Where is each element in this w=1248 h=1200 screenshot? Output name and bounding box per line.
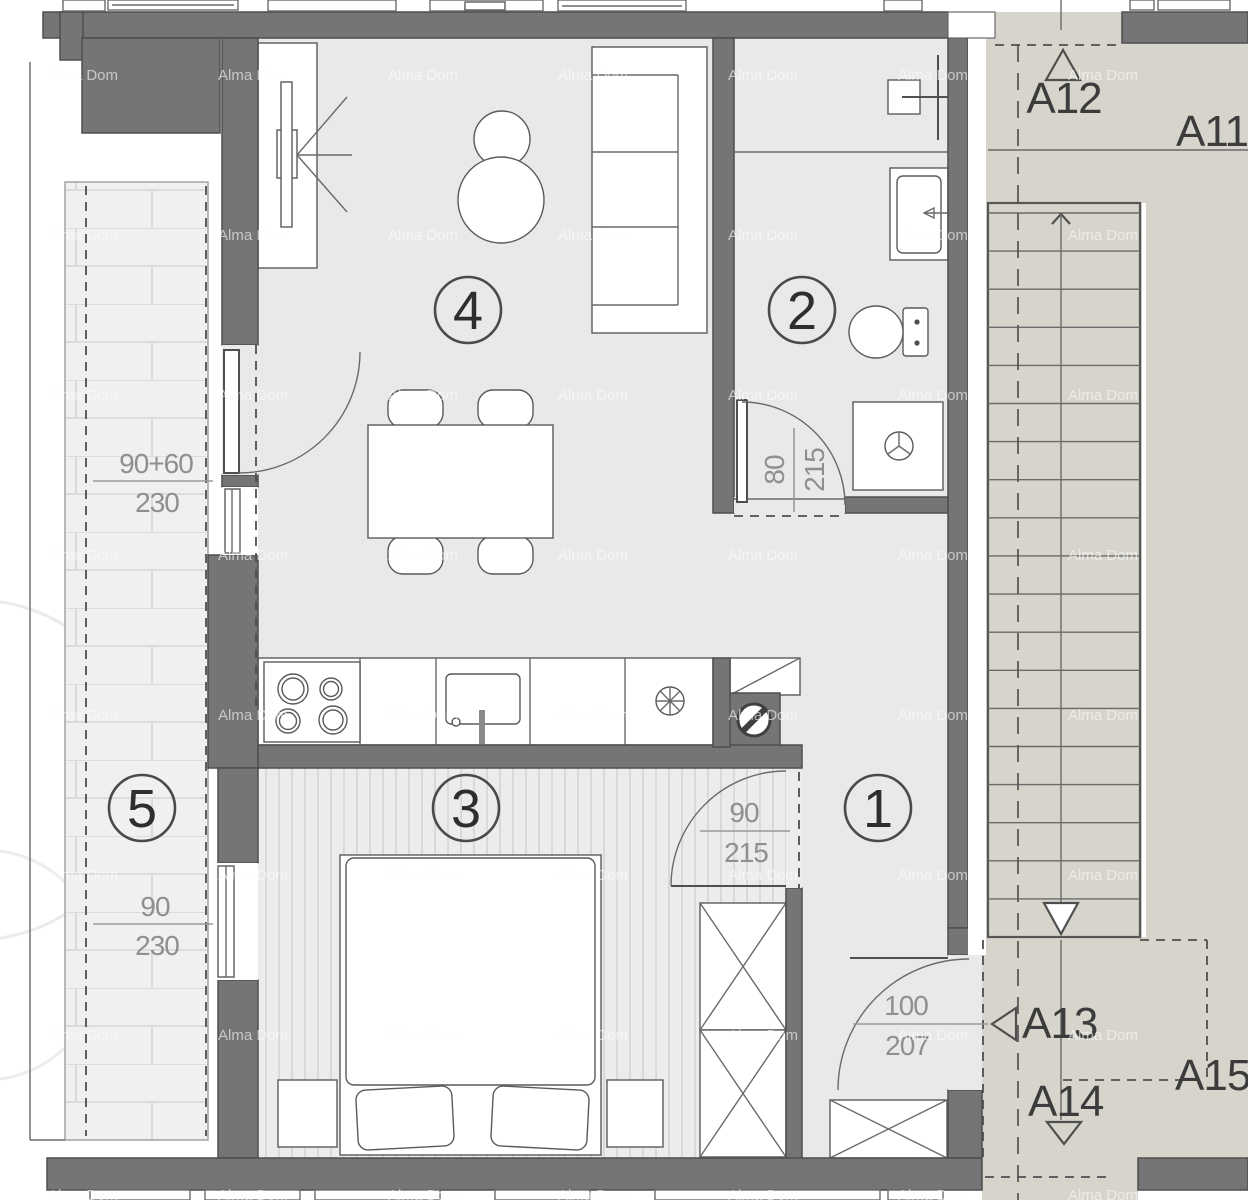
watermark-text: Alma Dom — [48, 1027, 118, 1044]
dim-width: 80 — [759, 455, 790, 485]
watermark-text: Alma Dom — [728, 1027, 798, 1044]
watermark-text: Alma Dom — [898, 1027, 968, 1044]
corner-unit — [730, 658, 800, 695]
bathroom-left-wall — [713, 38, 734, 513]
chair — [478, 390, 533, 428]
watermark-text: Alma Dom — [388, 1187, 458, 1200]
top-left-wall-stub — [60, 12, 83, 60]
bottom-right-wall — [1138, 1158, 1248, 1190]
watermark-text: Alma Dom — [48, 707, 118, 724]
top-wall — [43, 12, 948, 38]
bathroom-bottom-wall — [845, 497, 948, 513]
dim-width: 90 — [140, 891, 170, 922]
watermark-text: Alma Dom — [1068, 1027, 1138, 1044]
bed-mattress — [346, 858, 595, 1085]
dim-width: 90+60 — [119, 448, 193, 479]
kitchen-wall-stub — [713, 658, 730, 747]
watermark-text: Alma Dom — [48, 547, 118, 564]
watermark-text: Alma Dom — [388, 707, 458, 724]
watermark-text: Alma Dom — [218, 1027, 288, 1044]
watermark-text: Alma Dom — [558, 227, 628, 244]
watermark-text: Alma Dom — [898, 387, 968, 404]
balcony-window — [222, 487, 258, 555]
watermark-text: Alma Dom — [218, 707, 288, 724]
top-window-gap — [948, 12, 995, 38]
floor-plan: 90+60 230 90 230 80 215 90 215 100 207 — [0, 0, 1248, 1200]
nightstand — [607, 1080, 663, 1147]
watermark-text: Alma Dom — [48, 387, 118, 404]
watermark-text: Alma Dom — [728, 867, 798, 884]
watermark-text: Alma Dom — [898, 867, 968, 884]
watermark-text: Alma Dom — [218, 387, 288, 404]
svg-text:3: 3 — [451, 779, 481, 839]
unit-label-a14: A14 — [1028, 1077, 1104, 1126]
stairwell-floor — [968, 12, 1248, 1158]
watermark-text: Alma Dom — [898, 707, 968, 724]
dining-table — [368, 425, 553, 538]
bottom-wall — [47, 1158, 982, 1190]
watermark-text: Alma Dom — [1068, 1187, 1138, 1200]
pillow — [355, 1086, 454, 1151]
svg-text:5: 5 — [127, 779, 157, 839]
dim-height: 230 — [135, 930, 179, 961]
watermark-text: Alma Dom — [728, 227, 798, 244]
bedroom-hall-wall — [786, 888, 802, 1160]
watermark-text: Alma Dom — [218, 67, 288, 84]
tv-screen — [281, 82, 292, 227]
sofa — [592, 47, 707, 333]
corner-wall-block — [82, 38, 220, 133]
bedroom-left-wall-upper — [218, 768, 258, 863]
watermark-text: Alma Dom — [728, 67, 798, 84]
svg-text:1: 1 — [863, 779, 893, 839]
bedroom-left-wall-lower — [218, 980, 258, 1158]
unit-label-a11: A11 — [1176, 107, 1248, 156]
mullion — [222, 475, 258, 487]
dim-height: 215 — [724, 837, 768, 868]
watermark-text: Alma Dom — [558, 387, 628, 404]
watermark-text: Alma Dom — [388, 387, 458, 404]
pillow — [490, 1086, 589, 1151]
watermark-text: Alma Dom — [728, 547, 798, 564]
watermark-text: Alma Dom — [48, 867, 118, 884]
dim-height: 230 — [135, 487, 179, 518]
watermark-text: Alma Dom — [558, 707, 628, 724]
right-wall — [948, 38, 968, 928]
balcony-deck — [65, 182, 208, 1140]
watermark-text: Alma Dom — [388, 67, 458, 84]
watermark-text: Alma Dom — [48, 227, 118, 244]
watermark-text: Alma Dom — [1068, 67, 1138, 84]
watermark-text: Alma Dom — [388, 867, 458, 884]
watermark-text: Alma Dom — [898, 67, 968, 84]
wall-gap-strip — [968, 38, 986, 955]
watermark-text: Alma Dom — [48, 67, 118, 84]
watermark-text: Alma Dom — [558, 547, 628, 564]
nightstand — [278, 1080, 337, 1147]
toilet — [849, 306, 928, 358]
entrance-jamb-lower — [948, 1090, 982, 1158]
hallway — [830, 1100, 947, 1158]
shoe-cabinet — [830, 1100, 947, 1158]
watermark-text: Alma Dom — [558, 867, 628, 884]
extractor-fan-icon — [656, 687, 684, 715]
watermark-text: Alma Dom — [898, 547, 968, 564]
watermark-text: Alma Dom — [1068, 547, 1138, 564]
plant-icon — [458, 157, 544, 243]
left-wall-mid — [208, 555, 258, 768]
watermark-text: Alma Dom — [218, 547, 288, 564]
watermark-text: Alma Dom — [48, 1187, 118, 1200]
watermark-text: Alma Dom — [898, 227, 968, 244]
chair — [478, 536, 533, 574]
shower-tray — [853, 402, 943, 490]
living-bedroom-divider-wall — [258, 745, 802, 768]
watermark-text: Alma Dom — [218, 867, 288, 884]
dim-width: 90 — [729, 797, 759, 828]
watermark-text: Alma Dom — [898, 1187, 968, 1200]
watermark-text: Alma Dom — [388, 547, 458, 564]
svg-text:2: 2 — [787, 281, 817, 341]
watermark-text: Alma Dom — [728, 1187, 798, 1200]
watermark-text: Alma Dom — [558, 1027, 628, 1044]
watermark-text: Alma Dom — [1068, 707, 1138, 724]
dim-width: 100 — [884, 990, 928, 1021]
watermark-text: Alma Dom — [558, 67, 628, 84]
watermark-text: Alma Dom — [1068, 227, 1138, 244]
stove — [264, 662, 360, 742]
unit-label-a15: A15 — [1175, 1051, 1248, 1100]
watermark-text: Alma Dom — [218, 227, 288, 244]
watermark-text: Alma Dom — [728, 707, 798, 724]
watermark-text: Alma Dom — [1068, 867, 1138, 884]
svg-text:4: 4 — [453, 281, 483, 341]
watermark-text: Alma Dom — [218, 1187, 288, 1200]
living-room-left-wall — [222, 38, 258, 345]
watermark-text: Alma Dom — [388, 1027, 458, 1044]
watermark-text: Alma Dom — [388, 227, 458, 244]
bathroom-sink — [890, 168, 948, 260]
watermark-text: Alma Dom — [728, 387, 798, 404]
top-right-wall — [1122, 12, 1248, 43]
watermark-text: Alma Dom — [558, 1187, 628, 1200]
dim-height: 215 — [799, 448, 830, 492]
watermark-text: Alma Dom — [1068, 387, 1138, 404]
